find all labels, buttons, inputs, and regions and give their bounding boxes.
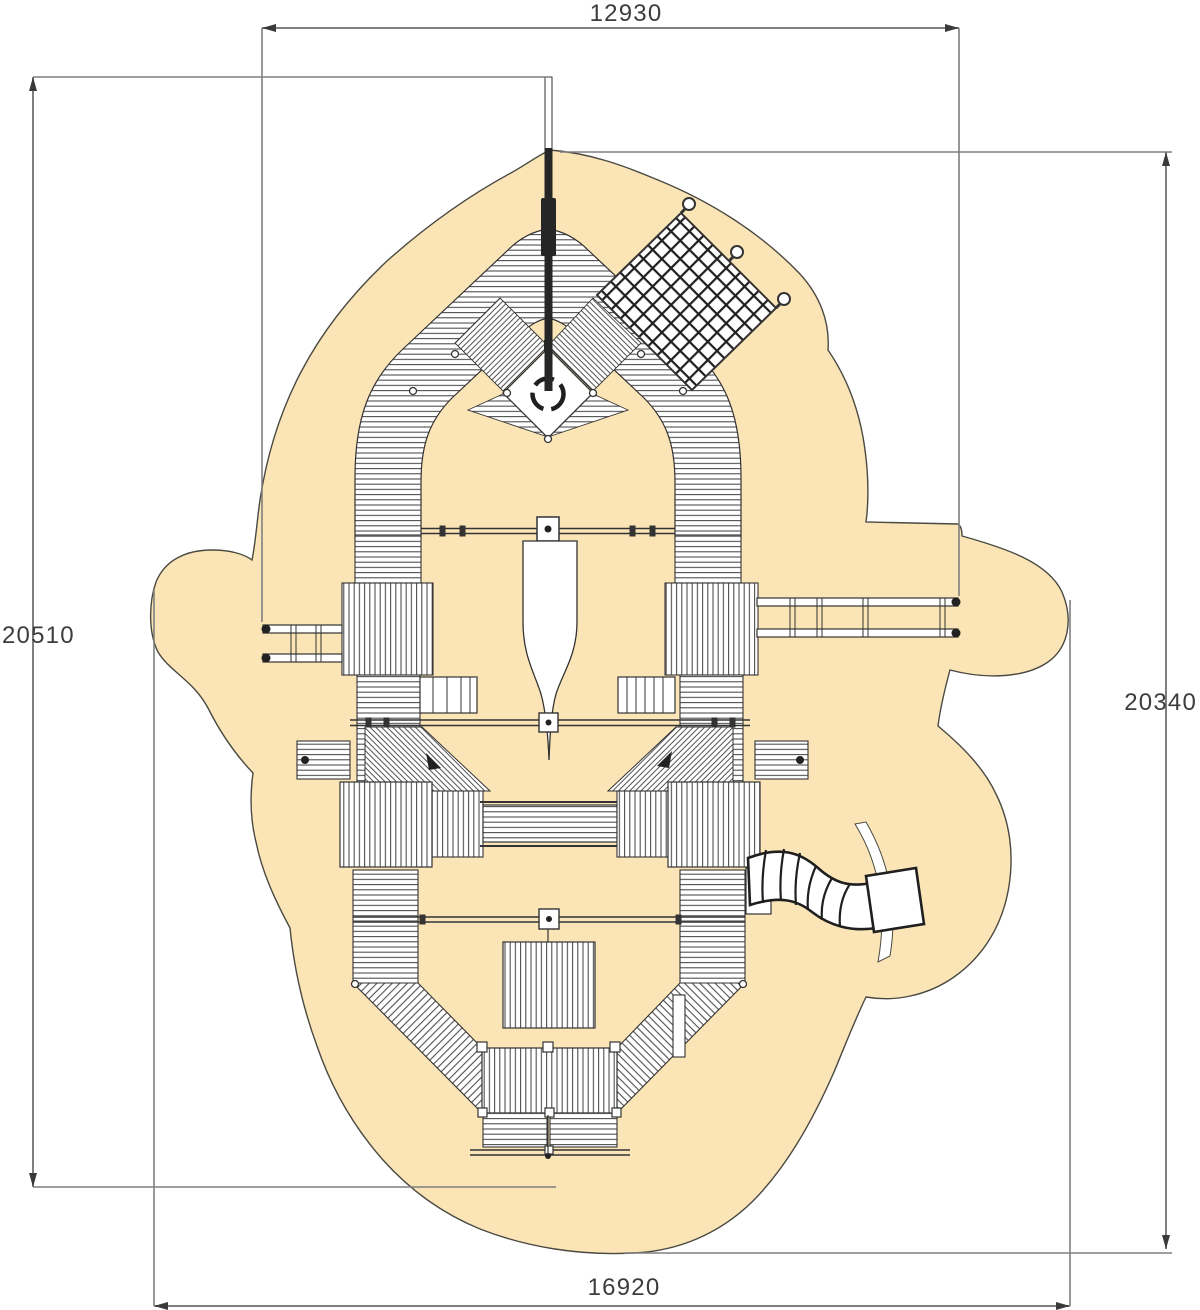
dimension-left-label: 20510 [2, 622, 75, 649]
post [740, 981, 747, 988]
slide-end-platform [866, 868, 924, 932]
bottom-post-dot [545, 1153, 551, 1159]
left-small-deck [432, 791, 483, 857]
post [352, 981, 359, 988]
right-stair-deck [665, 583, 758, 675]
bottom-deck [482, 1048, 617, 1113]
post [545, 1146, 553, 1154]
left-stair-deck [342, 583, 433, 675]
mast-pole [545, 77, 552, 149]
center-deck [503, 942, 595, 1028]
right-leg-upper [675, 535, 741, 585]
right-big-deck [668, 782, 760, 867]
right-leg-low [680, 870, 745, 985]
net-post [731, 246, 743, 258]
right-small-deck [617, 791, 668, 857]
bottom-ladder-left [483, 1113, 547, 1147]
slide-support [673, 995, 685, 1057]
rung-panel [618, 677, 675, 713]
post [543, 1042, 553, 1052]
post [410, 388, 417, 395]
left-leg-upper [355, 535, 421, 585]
plan-drawing: 12930 20510 20340 16920 [0, 0, 1200, 1310]
right-mini-ramp [755, 741, 808, 779]
post [477, 1042, 487, 1052]
dimension-top-label: 12930 [590, 0, 663, 27]
net-post [683, 198, 695, 210]
net-post [778, 293, 790, 305]
post [545, 1108, 554, 1117]
post [612, 1108, 621, 1117]
flag-bulge [541, 198, 556, 256]
drawing-canvas: 12930 20510 20340 16920 [0, 0, 1200, 1310]
post [610, 1042, 620, 1052]
post [590, 390, 597, 397]
post [545, 436, 552, 443]
monkey-bars [420, 677, 477, 713]
left-big-deck [340, 782, 432, 867]
post [504, 390, 511, 397]
dimension-right-label: 20340 [1124, 689, 1197, 716]
flag-bar [545, 148, 553, 391]
dimension-bottom-label: 16920 [588, 1274, 661, 1301]
left-mini-ramp [297, 741, 350, 779]
left-leg-low [353, 870, 418, 985]
post [478, 1108, 487, 1117]
plank-bridge [480, 802, 620, 846]
post [452, 351, 459, 358]
bottom-ladder-right [550, 1113, 617, 1147]
post [638, 351, 645, 358]
post [680, 388, 687, 395]
